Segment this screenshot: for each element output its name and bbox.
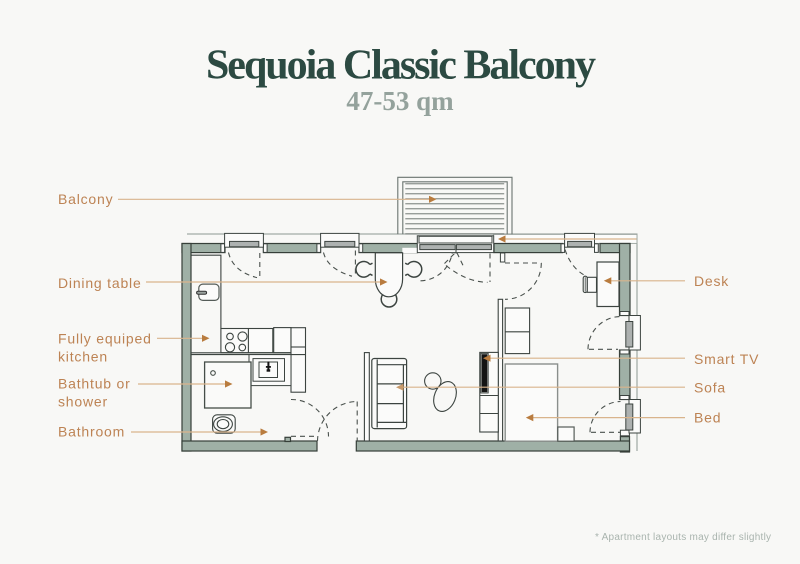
svg-text:Dining table: Dining table bbox=[58, 275, 142, 291]
svg-text:Bathroom: Bathroom bbox=[58, 424, 125, 440]
svg-text:* Apartment layouts may differ: * Apartment layouts may differ slightly bbox=[595, 532, 771, 543]
svg-text:shower: shower bbox=[58, 394, 108, 410]
svg-text:Desk: Desk bbox=[694, 273, 729, 289]
svg-text:Sequoia Classic Balcony: Sequoia Classic Balcony bbox=[206, 43, 596, 89]
svg-text:Sofa: Sofa bbox=[694, 379, 726, 395]
svg-text:Fully equiped: Fully equiped bbox=[58, 331, 152, 347]
svg-text:Balcony: Balcony bbox=[58, 191, 113, 207]
svg-text:kitchen: kitchen bbox=[58, 349, 108, 365]
svg-text:Bed: Bed bbox=[694, 410, 721, 426]
svg-text:47-53 qm: 47-53 qm bbox=[346, 86, 454, 116]
svg-text:Smart TV: Smart TV bbox=[694, 351, 759, 367]
svg-text:Bathtub or: Bathtub or bbox=[58, 376, 131, 392]
